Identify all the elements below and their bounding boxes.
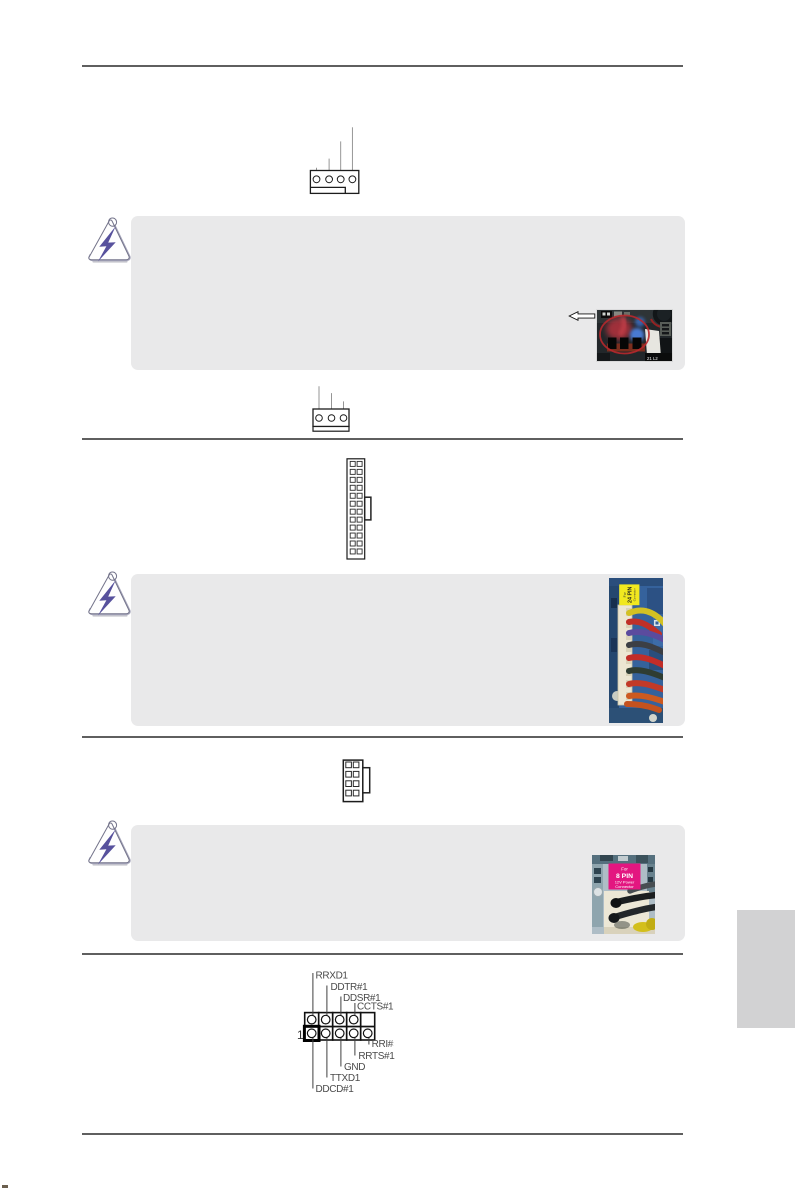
svg-text:1: 1 — [390, 1041, 394, 1048]
svg-text:GND: GND — [344, 1062, 365, 1073]
svg-text:21 L2: 21 L2 — [647, 356, 658, 361]
svg-text:DDCD#1: DDCD#1 — [316, 1084, 355, 1095]
svg-text:For: For — [621, 867, 628, 872]
svg-text:1: 1 — [297, 1028, 304, 1042]
svg-text:CCTS#1: CCTS#1 — [357, 1001, 394, 1012]
svg-text:For: For — [623, 591, 627, 597]
svg-text:RRTS#1: RRTS#1 — [358, 1051, 395, 1062]
svg-text:DDTR#1: DDTR#1 — [331, 982, 369, 993]
svg-text:Connector: Connector — [615, 884, 634, 889]
svg-text:RRXD1: RRXD1 — [316, 971, 349, 982]
svg-text:TTXD1: TTXD1 — [330, 1073, 361, 1084]
svg-text:Connector: Connector — [632, 588, 636, 601]
